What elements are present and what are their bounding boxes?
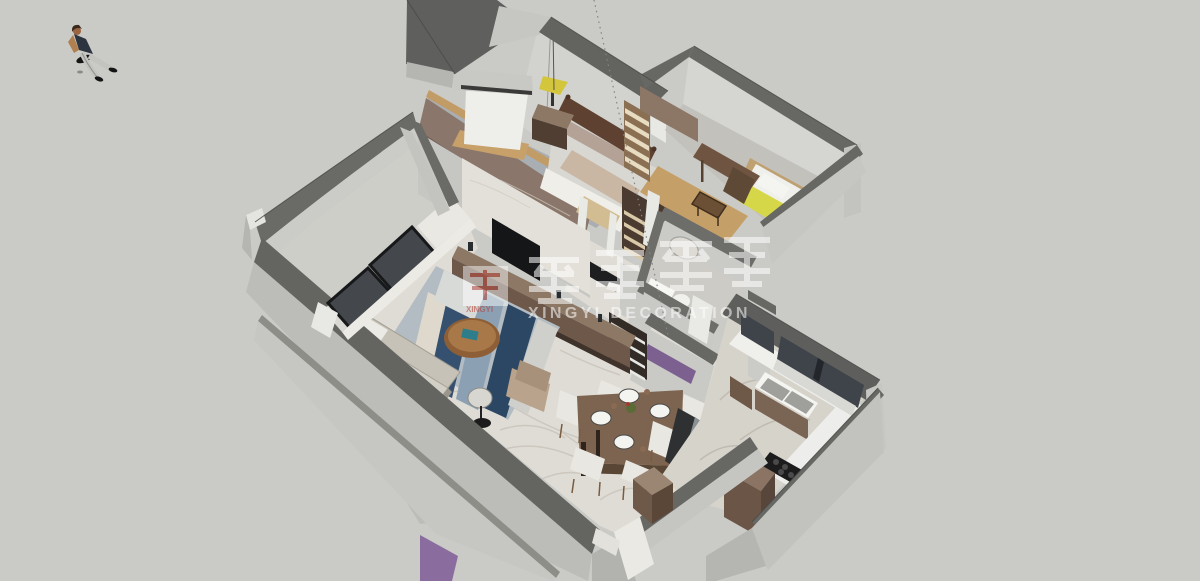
svg-text:XINGYI: XINGYI <box>466 305 493 314</box>
svg-text:XINGYI DECORATION: XINGYI DECORATION <box>528 305 751 322</box>
